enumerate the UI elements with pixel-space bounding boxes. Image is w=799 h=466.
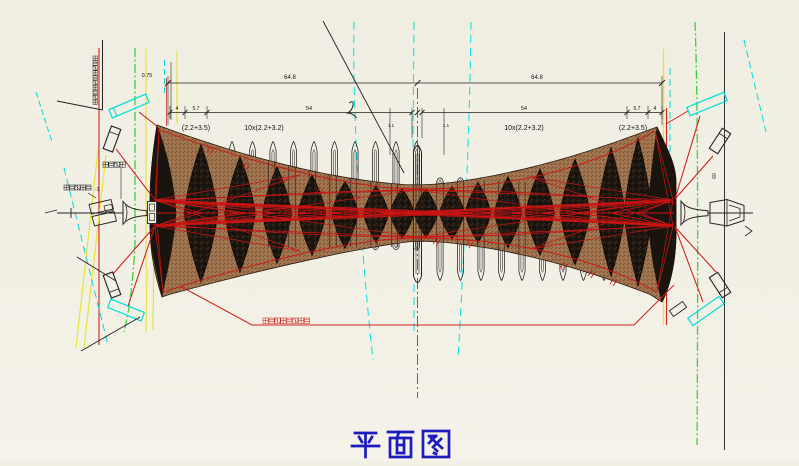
svg-text:(2.2+3.5): (2.2+3.5) xyxy=(182,125,210,132)
svg-text:1.1: 1.1 xyxy=(388,123,395,128)
svg-text:5.7: 5.7 xyxy=(634,106,641,112)
svg-text:4: 4 xyxy=(176,106,179,112)
svg-text:60: 60 xyxy=(712,173,718,179)
svg-text:5.7: 5.7 xyxy=(193,106,200,112)
svg-text:54: 54 xyxy=(306,106,312,112)
svg-text:10x(2.2+3.2): 10x(2.2+3.2) xyxy=(504,125,544,132)
svg-text:54: 54 xyxy=(521,106,527,112)
svg-text:64.8: 64.8 xyxy=(284,75,296,81)
svg-text:10x(2.2+3.2): 10x(2.2+3.2) xyxy=(244,125,284,132)
svg-text:(2.2+3.5): (2.2+3.5) xyxy=(619,125,647,132)
svg-text:1.1: 1.1 xyxy=(443,123,450,128)
svg-text:-1: -1 xyxy=(95,187,100,193)
svg-text:64.8: 64.8 xyxy=(531,75,543,81)
svg-text:0.75: 0.75 xyxy=(142,73,153,79)
svg-text:4: 4 xyxy=(654,106,657,112)
